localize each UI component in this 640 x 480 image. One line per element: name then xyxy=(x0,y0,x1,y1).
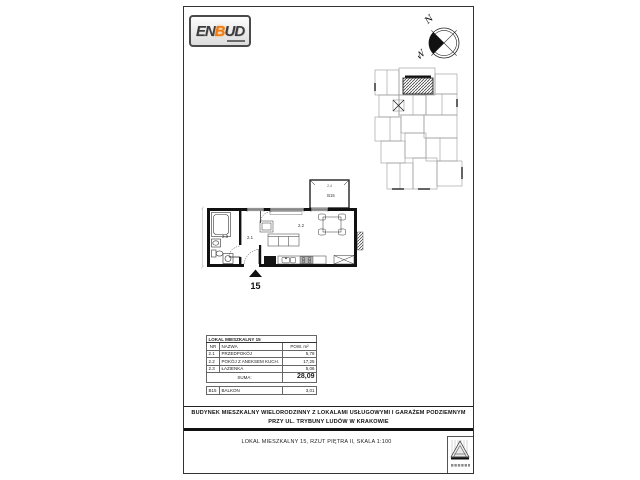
project-title-line2: PRZY UL. TRYBUNY LUDÓW W KRAKOWIE xyxy=(184,419,473,425)
firm-logo-base xyxy=(451,458,469,460)
col-nr: NR xyxy=(207,343,220,350)
title-block-divider xyxy=(184,406,473,407)
key-plan-balcony-marks xyxy=(375,83,462,189)
title-block-bar xyxy=(184,428,473,431)
room-label-bath: 2.3 xyxy=(222,234,229,239)
logo-letter-b: B xyxy=(215,23,225,40)
key-plan-stairwell xyxy=(393,100,404,111)
radiator xyxy=(270,212,302,215)
balcony-dimension: 2,4 xyxy=(327,184,332,188)
balcony: 2,4 B15 xyxy=(310,180,349,208)
row-nr: B15 xyxy=(207,387,220,394)
suma-value: 28,09 xyxy=(283,372,317,382)
fridge xyxy=(264,256,276,264)
balcony-label: B15 xyxy=(327,193,335,198)
bathroom-door xyxy=(229,246,240,257)
room-label-hall: 2.1 xyxy=(247,235,254,240)
table-row: B15 BALKON 3,01 xyxy=(207,387,317,394)
key-plan-highlighted-unit xyxy=(403,78,433,94)
row-nr: 2.2 xyxy=(207,358,220,365)
firm-logo-triangle xyxy=(451,441,469,457)
entrance-opening xyxy=(244,264,259,268)
col-pow: POW. m² xyxy=(283,343,317,350)
row-nazwa: ŁAZIENKA xyxy=(220,365,283,372)
shaft-box xyxy=(334,256,354,265)
row-nazwa: BALKON xyxy=(220,387,283,394)
toilet xyxy=(212,250,223,257)
room-label-room: 2.2 xyxy=(298,223,305,228)
entrance-arrow xyxy=(249,270,262,278)
row-nr: 2.1 xyxy=(207,350,220,357)
table-title: LOKAL MIESZKALNY 15 xyxy=(207,336,317,343)
areas-section: LOKAL MIESZKALNY 15 NR NAZWA POW. m² 2.1… xyxy=(206,335,318,395)
coffee-table xyxy=(260,221,273,232)
enbud-logo: ENBUD xyxy=(189,15,251,47)
key-plan xyxy=(370,67,472,191)
balcony-divider xyxy=(358,232,364,250)
table-row: 2.1 PRZEDPOKÓJ 5,78 xyxy=(207,350,317,357)
compass-west-label: W xyxy=(418,48,428,62)
entrance-door xyxy=(244,249,259,264)
bathtub xyxy=(212,213,231,237)
firm-logo-icon xyxy=(448,437,473,473)
logo-tagline-mark xyxy=(227,40,245,43)
table-row: 2.3 ŁAZIENKA 5,06 xyxy=(207,365,317,372)
firm-logo-box xyxy=(447,436,473,473)
logo-letters-en: EN xyxy=(196,23,215,40)
compass-needle xyxy=(429,32,444,53)
row-pow: 17,25 xyxy=(283,358,317,365)
compass-rose: N W xyxy=(418,13,470,69)
logo-letters-ud: UD xyxy=(225,23,245,40)
col-nazwa: NAZWA xyxy=(220,343,283,350)
floor-plan: 2,4 B15 xyxy=(194,177,399,312)
stove xyxy=(300,257,313,264)
firm-logo-lettering xyxy=(451,464,470,467)
row-pow: 3,01 xyxy=(283,387,317,394)
washbasin xyxy=(212,239,221,247)
compass-north-label: N xyxy=(423,13,437,27)
project-title-line1: BUDYNEK MIESZKALNY WIELORODZINNY Z LOKAL… xyxy=(184,410,473,416)
area-table: LOKAL MIESZKALNY 15 NR NAZWA POW. m² 2.1… xyxy=(206,335,317,383)
drawing-sheet: ENBUD N W xyxy=(183,6,474,474)
enbud-logo-text: ENBUD xyxy=(196,24,244,39)
sofa xyxy=(268,234,299,246)
row-pow: 5,06 xyxy=(283,365,317,372)
table-row: 2.2 POKÓJ Z ANEKSEM KUCH. 17,25 xyxy=(207,358,317,365)
drawing-page: ENBUD N W xyxy=(0,0,640,480)
unit-number: 15 xyxy=(250,281,260,291)
washing-machine xyxy=(223,254,233,264)
row-nazwa: PRZEDPOKÓJ xyxy=(220,350,283,357)
suma-label: SUMA: xyxy=(207,372,283,382)
row-pow: 5,78 xyxy=(283,350,317,357)
sheet-subtitle: LOKAL MIESZKALNY 15, RZUT PIĘTRA II, SKA… xyxy=(184,439,449,445)
dimension-line xyxy=(201,207,204,269)
balcony-table: B15 BALKON 3,01 xyxy=(206,386,317,394)
suma-row: SUMA: 28,09 xyxy=(207,372,317,382)
dining-table xyxy=(319,214,346,235)
row-nr: 2.3 xyxy=(207,365,220,372)
row-nazwa: POKÓJ Z ANEKSEM KUCH. xyxy=(220,358,283,365)
